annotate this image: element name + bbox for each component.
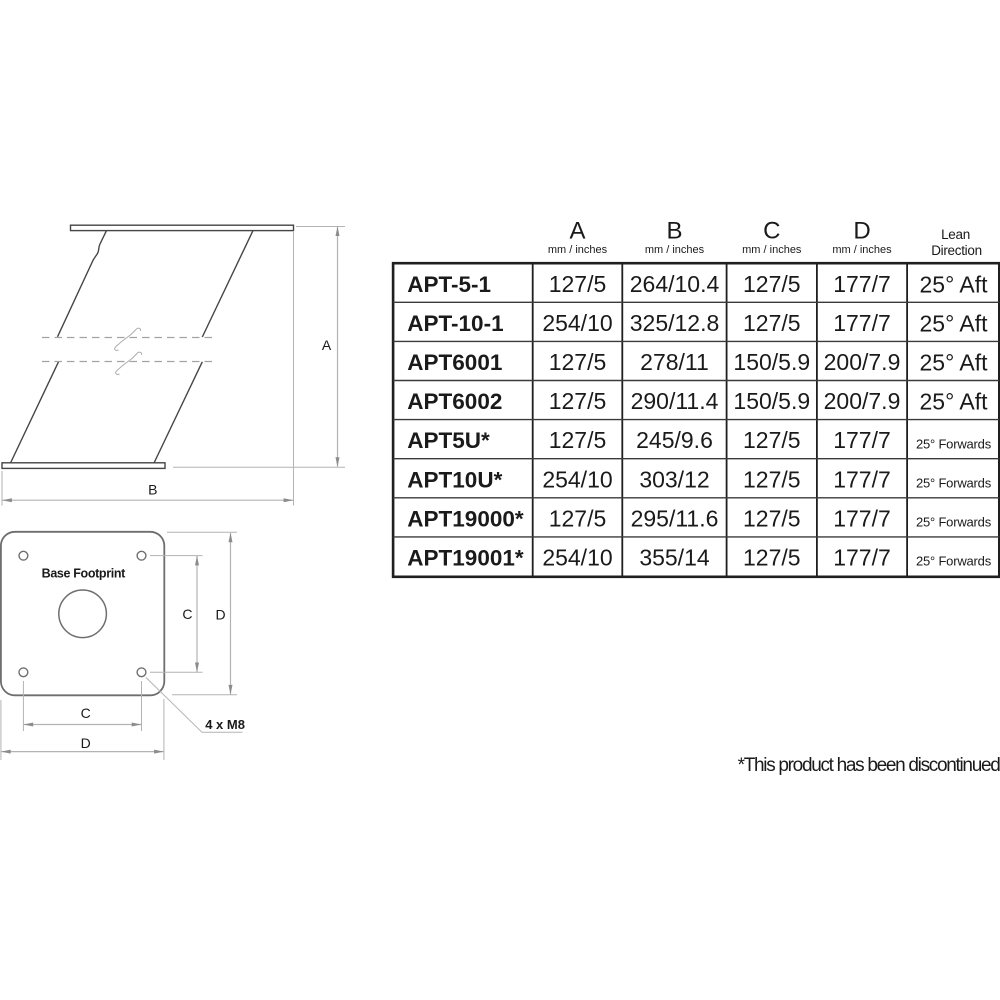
svg-text:355/14: 355/14 [639, 545, 710, 571]
svg-text:mm / inches: mm / inches [645, 244, 705, 256]
svg-text:mm / inches: mm / inches [548, 244, 608, 256]
svg-text:177/7: 177/7 [833, 271, 891, 297]
svg-text:mm / inches: mm / inches [832, 244, 892, 256]
svg-text:25° Aft: 25° Aft [919, 271, 988, 297]
svg-text:127/5: 127/5 [743, 310, 801, 336]
svg-text:APT10U*: APT10U* [407, 467, 502, 492]
svg-text:25° Forwards: 25° Forwards [916, 476, 992, 491]
svg-text:D: D [216, 607, 226, 623]
svg-text:278/11: 278/11 [640, 349, 709, 375]
svg-text:C: C [81, 705, 91, 721]
svg-text:127/5: 127/5 [743, 545, 801, 571]
svg-text:127/5: 127/5 [549, 505, 607, 531]
svg-text:127/5: 127/5 [549, 271, 607, 297]
svg-text:APT19000*: APT19000* [407, 506, 524, 531]
svg-text:127/5: 127/5 [549, 349, 607, 375]
svg-text:127/5: 127/5 [743, 505, 801, 531]
svg-text:127/5: 127/5 [549, 427, 607, 453]
svg-text:Lean: Lean [941, 227, 970, 242]
svg-text:D: D [81, 735, 91, 751]
svg-text:303/12: 303/12 [639, 466, 709, 492]
svg-text:25° Aft: 25° Aft [919, 389, 988, 415]
svg-text:APT5U*: APT5U* [407, 428, 490, 453]
svg-text:264/10.4: 264/10.4 [630, 271, 720, 297]
svg-text:245/9.6: 245/9.6 [636, 427, 713, 453]
svg-text:APT-5-1: APT-5-1 [407, 272, 491, 297]
svg-text:B: B [666, 218, 682, 245]
svg-text:177/7: 177/7 [833, 466, 891, 492]
svg-text:APT6001: APT6001 [407, 350, 502, 375]
svg-text:254/10: 254/10 [542, 545, 612, 571]
svg-text:127/5: 127/5 [549, 388, 607, 414]
svg-text:*This product has been discont: *This product has been discontinued [738, 755, 1000, 776]
svg-text:295/11.6: 295/11.6 [631, 505, 719, 531]
svg-text:177/7: 177/7 [833, 310, 891, 336]
svg-text:25° Forwards: 25° Forwards [916, 554, 992, 569]
svg-text:D: D [853, 218, 870, 245]
svg-text:127/5: 127/5 [743, 271, 801, 297]
svg-text:127/5: 127/5 [743, 427, 801, 453]
svg-text:25° Aft: 25° Aft [919, 350, 988, 376]
svg-text:254/10: 254/10 [542, 466, 612, 492]
svg-text:A: A [569, 218, 585, 245]
svg-text:325/12.8: 325/12.8 [630, 310, 720, 336]
svg-text:Direction: Direction [931, 243, 982, 258]
svg-text:200/7.9: 200/7.9 [824, 388, 901, 414]
svg-text:mm / inches: mm / inches [742, 244, 802, 256]
svg-text:A: A [322, 337, 332, 353]
svg-text:APT6002: APT6002 [407, 389, 502, 414]
svg-text:B: B [148, 481, 157, 497]
svg-text:APT-10-1: APT-10-1 [407, 311, 503, 336]
svg-text:290/11.4: 290/11.4 [631, 388, 719, 414]
svg-text:C: C [182, 606, 192, 622]
svg-text:C: C [763, 218, 780, 245]
svg-text:150/5.9: 150/5.9 [733, 388, 810, 414]
svg-text:25° Forwards: 25° Forwards [916, 515, 992, 530]
svg-text:APT19001*: APT19001* [407, 546, 524, 571]
svg-text:254/10: 254/10 [542, 310, 612, 336]
svg-text:150/5.9: 150/5.9 [733, 349, 810, 375]
svg-text:177/7: 177/7 [833, 427, 891, 453]
svg-text:25° Forwards: 25° Forwards [916, 436, 992, 451]
svg-text:25° Aft: 25° Aft [919, 310, 988, 336]
svg-text:177/7: 177/7 [833, 505, 891, 531]
svg-text:200/7.9: 200/7.9 [824, 349, 901, 375]
svg-text:177/7: 177/7 [833, 545, 891, 571]
svg-text:127/5: 127/5 [743, 466, 801, 492]
svg-text:4 x M8: 4 x M8 [205, 717, 245, 732]
svg-text:Base Footprint: Base Footprint [42, 566, 126, 580]
